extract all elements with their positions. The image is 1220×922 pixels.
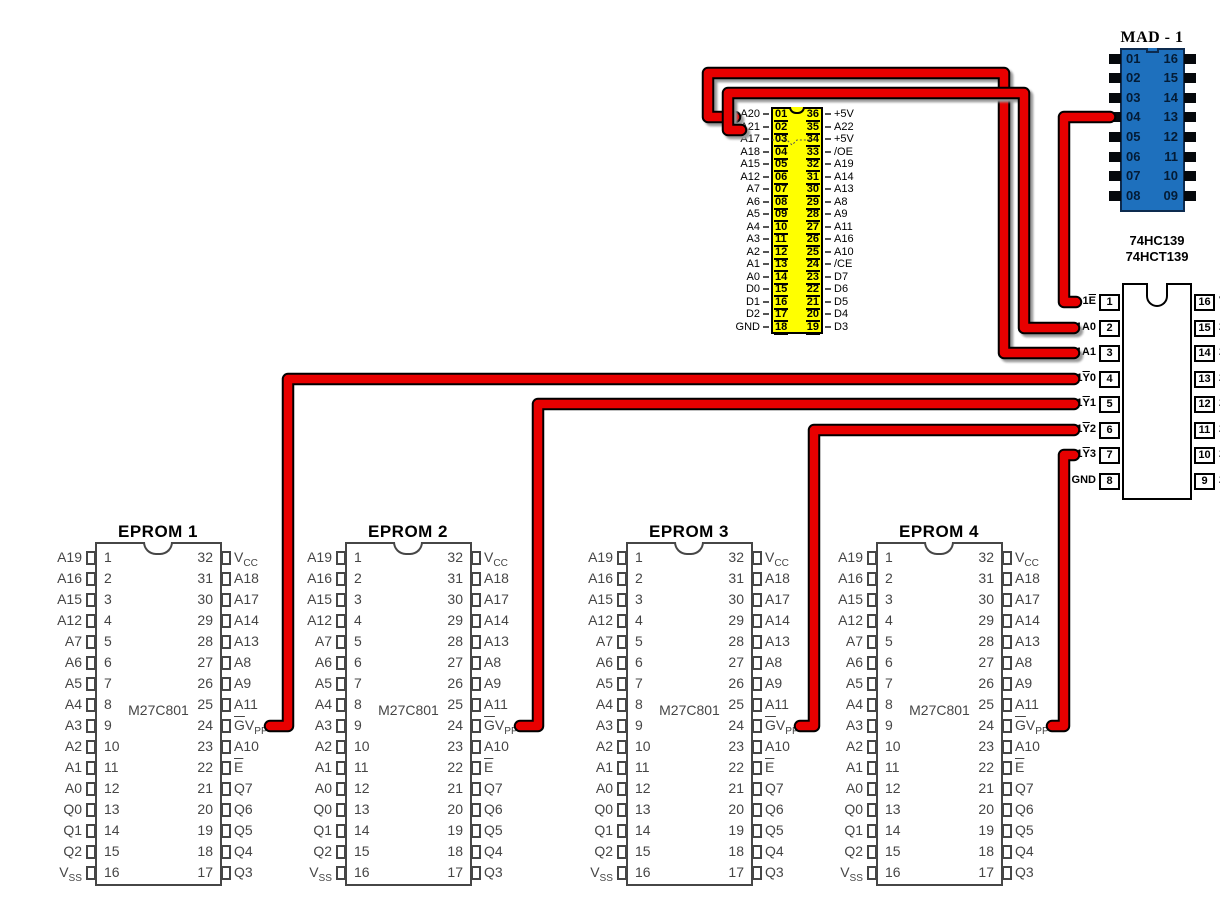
pin-label: 1Y1 [1026,397,1096,410]
pin-label: A1 [799,759,863,776]
pin-number: 18 [173,843,213,860]
chip-body [1122,283,1192,500]
pin-label: A0 [268,780,332,797]
pin-number: 13 [104,801,120,818]
pin-stub [471,866,481,880]
pin-number: 4 [104,612,112,629]
pin-label: A12 [18,612,82,629]
pin-number: 3 [885,591,893,608]
pin-label: Q7 [484,780,554,797]
pin-label: Q2 [268,843,332,860]
pin-tick [763,301,769,303]
pin-stub [752,845,762,859]
pin-number: 11 [1145,150,1178,164]
pin-number: 7 [104,675,112,692]
pin-label: A7 [268,633,332,650]
pin-label: A11 [484,696,554,713]
pin-number: 20 [954,801,994,818]
pin-label: VCC [1015,549,1085,566]
pin-label: D7 [834,271,892,283]
pin-stub [617,845,627,859]
pin-label: A0 [18,780,82,797]
pin-number: 4 [354,612,362,629]
pin-stub [752,866,762,880]
pin-label: VSS [549,864,613,881]
pin-number: 8 [354,696,362,713]
pin-stub [86,845,96,859]
pin-stub [867,614,877,628]
pin-tick [825,213,831,215]
pin-label: E [1015,759,1085,776]
pin-number: 6 [354,654,362,671]
pin-number-box: 12 [1194,396,1215,413]
pin-label: A4 [18,696,82,713]
pin-number: 9 [354,717,362,734]
pin-stub [752,803,762,817]
pin-label: A5 [18,675,82,692]
pin-tick [825,326,831,328]
pin-number: 2 [104,570,112,587]
pin-stub [1184,54,1196,64]
pin-tick [763,188,769,190]
pin-label: GND [696,321,760,333]
pin-number: 30 [423,591,463,608]
pin-label: A2 [799,738,863,755]
pin-tick [763,176,769,178]
pin-number: 4 [885,612,893,629]
pin-label: A8 [1015,654,1085,671]
pin-stub [1002,593,1012,607]
pin-number: 09 [1145,189,1178,203]
pin-label: D2 [696,308,760,320]
pin-label: A6 [696,196,760,208]
pin-stub [1109,112,1121,122]
pin-number: 29 [173,612,213,629]
pin-label: Q0 [268,801,332,818]
pin-label: A2 [18,738,82,755]
pin-stub [471,593,481,607]
pin-number: 08 [1126,189,1140,203]
pin-stub [221,803,231,817]
pin-number: 14 [354,822,370,839]
pin-label: A16 [18,570,82,587]
pin-stub [617,677,627,691]
pin-stub [1109,191,1121,201]
pin-number: 28 [173,633,213,650]
pin-number: 23 [173,738,213,755]
pin-stub [867,761,877,775]
pin-stub [867,866,877,880]
pin-tick [825,188,831,190]
pin-stub [617,740,627,754]
pin-label: Q0 [549,801,613,818]
pin-tick [763,151,769,153]
pin-stub [221,593,231,607]
pin-label: A13 [484,633,554,650]
pin-tick [763,251,769,253]
pin-number: 28 [704,633,744,650]
pin-stub [617,761,627,775]
pin-stub [867,698,877,712]
pin-number: 24 [704,717,744,734]
pin-stub [336,782,346,796]
pin-label: A7 [799,633,863,650]
pin-stub [1002,845,1012,859]
pin-stub [867,824,877,838]
pin-label: A12 [799,612,863,629]
pin-label: A7 [18,633,82,650]
pin-number: 30 [704,591,744,608]
pin-number: 18 [423,843,463,860]
pin-label: /OE [834,146,892,158]
pin-number: 24 [173,717,213,734]
pin-tick [763,163,769,165]
pin-number: 22 [423,759,463,776]
pin-stub [1002,614,1012,628]
pin-number: 19 [423,822,463,839]
pin-number: 13 [635,801,651,818]
pin-number: 19 [794,321,820,335]
pin-stub [617,593,627,607]
pin-stub [1109,132,1121,142]
pin-label: Q1 [268,822,332,839]
pin-stub [336,740,346,754]
pin-stub [86,761,96,775]
pin-stub [617,866,627,880]
pin-number: 8 [635,696,643,713]
pin-label: A17 [696,133,760,145]
pin-stub [1002,719,1012,733]
pin-number-box: 11 [1194,422,1215,439]
pin-number: 10 [1145,169,1178,183]
pin-number: 32 [173,549,213,566]
pin-stub [336,656,346,670]
pin-stub [1002,698,1012,712]
pin-label: A3 [696,233,760,245]
pin-label: A4 [268,696,332,713]
pin-stub [221,614,231,628]
pin-label: D1 [696,296,760,308]
pin-label: A6 [549,654,613,671]
pin-label: A10 [1015,738,1085,755]
pin-label: 1Y2 [1026,423,1096,436]
pin-stub [1109,93,1121,103]
pin-stub [617,719,627,733]
pin-number: 16 [354,864,370,881]
pin-number: 19 [704,822,744,839]
chip-title: EPROM 4 [869,523,1009,541]
pin-number: 29 [704,612,744,629]
pin-tick [825,126,831,128]
pin-tick [825,201,831,203]
pin-number: 27 [173,654,213,671]
pin-label: A4 [549,696,613,713]
pin-number: 5 [104,633,112,650]
pin-number: 25 [704,696,744,713]
pin-stub [617,698,627,712]
pin-label: Q0 [799,801,863,818]
pin-number: 04 [1126,110,1140,124]
pin-label: A7 [549,633,613,650]
pin-tick [763,276,769,278]
pin-stub [1184,171,1196,181]
pin-label: A6 [268,654,332,671]
pin-number: 23 [423,738,463,755]
pin-number-box: 4 [1099,371,1120,388]
pin-label: A18 [484,570,554,587]
pin-number: 21 [173,780,213,797]
pin-stub [336,551,346,565]
pin-label: VSS [799,864,863,881]
pin-stub [752,593,762,607]
pin-stub [617,803,627,817]
pin-number: 11 [885,759,900,776]
pin-number-box: 1 [1099,294,1120,311]
pin-number: 3 [104,591,112,608]
pin-label: Q4 [1015,843,1085,860]
pin-stub [1002,761,1012,775]
pin-label: A9 [1015,675,1085,692]
pin-stub [867,635,877,649]
pin-number: 8 [104,696,112,713]
pin-stub [1184,132,1196,142]
pin-number: 15 [354,843,370,860]
pin-label: A13 [1015,633,1085,650]
pin-tick [825,238,831,240]
pin-label: A10 [834,246,892,258]
pin-number: 31 [173,570,213,587]
pin-number: 13 [1145,110,1178,124]
pin-number: 26 [173,675,213,692]
pin-label: A15 [268,591,332,608]
pin-number: 18 [774,321,788,335]
pin-label: +5V [834,108,892,120]
pin-stub [867,845,877,859]
wire-mad1-pin04-to-1e [1064,117,1110,302]
pin-label: Q1 [549,822,613,839]
pin-stub [617,635,627,649]
pin-number: 12 [354,780,370,797]
pin-number: 25 [423,696,463,713]
pin-number: 9 [104,717,112,734]
pin-number: 20 [423,801,463,818]
pin-number: 18 [954,843,994,860]
pin-label: D6 [834,283,892,295]
pin-number: 31 [704,570,744,587]
pin-stub [867,677,877,691]
pin-number: 11 [635,759,650,776]
pin-label: A18 [1015,570,1085,587]
pin-stub [221,698,231,712]
pin-number-box: 5 [1099,396,1120,413]
pin-stub [752,740,762,754]
pin-tick [825,151,831,153]
pin-label: A8 [484,654,554,671]
chip-title: EPROM 1 [88,523,228,541]
pin-number: 14 [635,822,651,839]
pin-label: A19 [799,549,863,566]
pin-number-box: 13 [1194,371,1215,388]
pin-stub [471,698,481,712]
pin-number-text: 18 [774,321,788,335]
pin-number: 16 [1145,52,1178,66]
pin-stub [752,824,762,838]
pin-stub [471,656,481,670]
pin-tick [825,288,831,290]
pin-number: 28 [954,633,994,650]
pin-number-box: 14 [1194,345,1215,362]
pin-number: 14 [885,822,901,839]
pin-stub [752,656,762,670]
pin-label: A0 [799,780,863,797]
pin-number: 15 [1145,71,1178,85]
pin-number-box: 8 [1099,473,1120,490]
pin-number: 25 [954,696,994,713]
pin-label: A13 [834,183,892,195]
pin-label: A8 [834,196,892,208]
pin-tick [763,238,769,240]
pin-number: 6 [104,654,112,671]
pin-number: 20 [173,801,213,818]
pin-stub [471,782,481,796]
pin-stub [1002,866,1012,880]
pin-label: A17 [1015,591,1085,608]
pin-label: A15 [799,591,863,608]
pin-stub [336,824,346,838]
pin-label: A2 [696,246,760,258]
pin-label: A17 [484,591,554,608]
pin-number-box: 15 [1194,320,1215,337]
pin-stub [221,719,231,733]
pin-label: Q5 [1015,822,1085,839]
chip-title: EPROM 3 [619,523,759,541]
pin-number-box: 16 [1194,294,1215,311]
pin-stub [221,866,231,880]
pin-label: A16 [834,233,892,245]
pin-stub [617,782,627,796]
pin-number: 10 [885,738,901,755]
pin-number: 22 [173,759,213,776]
pin-stub [867,593,877,607]
pin-label: A6 [18,654,82,671]
pin-number: 25 [173,696,213,713]
pin-stub [86,572,96,586]
pin-number: 10 [354,738,370,755]
pin-label: Q1 [799,822,863,839]
pin-number: 32 [704,549,744,566]
pin-stub [471,635,481,649]
pin-number: 17 [423,864,463,881]
pin-number: 4 [635,612,643,629]
pin-label: Q6 [1015,801,1085,818]
chip-title: MAD - 1 [1112,29,1192,47]
pin-number: 21 [954,780,994,797]
pin-number: 3 [354,591,362,608]
pin-label: A14 [1015,612,1085,629]
pin-number: 3 [635,591,643,608]
pin-label: 1E [1026,295,1096,308]
pin-label: D0 [696,283,760,295]
pin-stub [617,572,627,586]
pin-stub [86,656,96,670]
pin-label: A12 [696,171,760,183]
pin-stub [86,698,96,712]
pin-number: 6 [635,654,643,671]
pin-number: 10 [104,738,120,755]
pin-stub [471,572,481,586]
pin-stub [86,719,96,733]
pin-number: 32 [954,549,994,566]
pin-number: 2 [354,570,362,587]
pin-label: A19 [834,158,892,170]
pin-label: A12 [268,612,332,629]
pin-number: 15 [104,843,120,860]
pin-stub [221,572,231,586]
pin-label: A3 [549,717,613,734]
pin-stub [1002,656,1012,670]
pin-stub [336,803,346,817]
pin-stub [221,740,231,754]
pin-number: 12 [635,780,651,797]
pin-label: GND [1026,474,1096,487]
pin-stub [86,803,96,817]
pin-label: A0 [696,271,760,283]
pin-label: Q2 [549,843,613,860]
pin-label: A15 [696,158,760,170]
pin-stub [471,677,481,691]
pin-number: 16 [635,864,651,881]
pin-label: A19 [549,549,613,566]
pin-label: VSS [268,864,332,881]
pin-label: GVPP [1015,717,1085,734]
pin-tick [825,263,831,265]
pin-number: 1 [635,549,643,566]
pin-stub [752,677,762,691]
pin-number: 27 [954,654,994,671]
pin-stub [867,572,877,586]
pin-label: A12 [549,612,613,629]
pin-number: 02 [1126,71,1140,85]
pin-stub [471,614,481,628]
pin-stub [471,824,481,838]
pin-stub [336,593,346,607]
pin-label: Q1 [18,822,82,839]
pin-label: A1 [18,759,82,776]
pin-tick [763,138,769,140]
pin-stub [1002,740,1012,754]
pin-stub [752,614,762,628]
pin-stub [86,593,96,607]
pin-number: 03 [1126,91,1140,105]
pin-label: A4 [696,221,760,233]
pin-stub [1002,677,1012,691]
pin-stub [336,572,346,586]
pin-number: 17 [704,864,744,881]
pin-number: 24 [423,717,463,734]
pin-number-box: 9 [1194,473,1215,490]
pin-stub [471,803,481,817]
pin-number: 12 [885,780,901,797]
pin-tick [825,176,831,178]
pin-number: 30 [173,591,213,608]
pin-stub [1002,551,1012,565]
pin-stub [1109,54,1121,64]
pin-label: /CE [834,258,892,270]
pin-label: Q0 [18,801,82,818]
pin-label: A2 [268,738,332,755]
pin-label: A11 [1015,696,1085,713]
pin-stub [86,677,96,691]
